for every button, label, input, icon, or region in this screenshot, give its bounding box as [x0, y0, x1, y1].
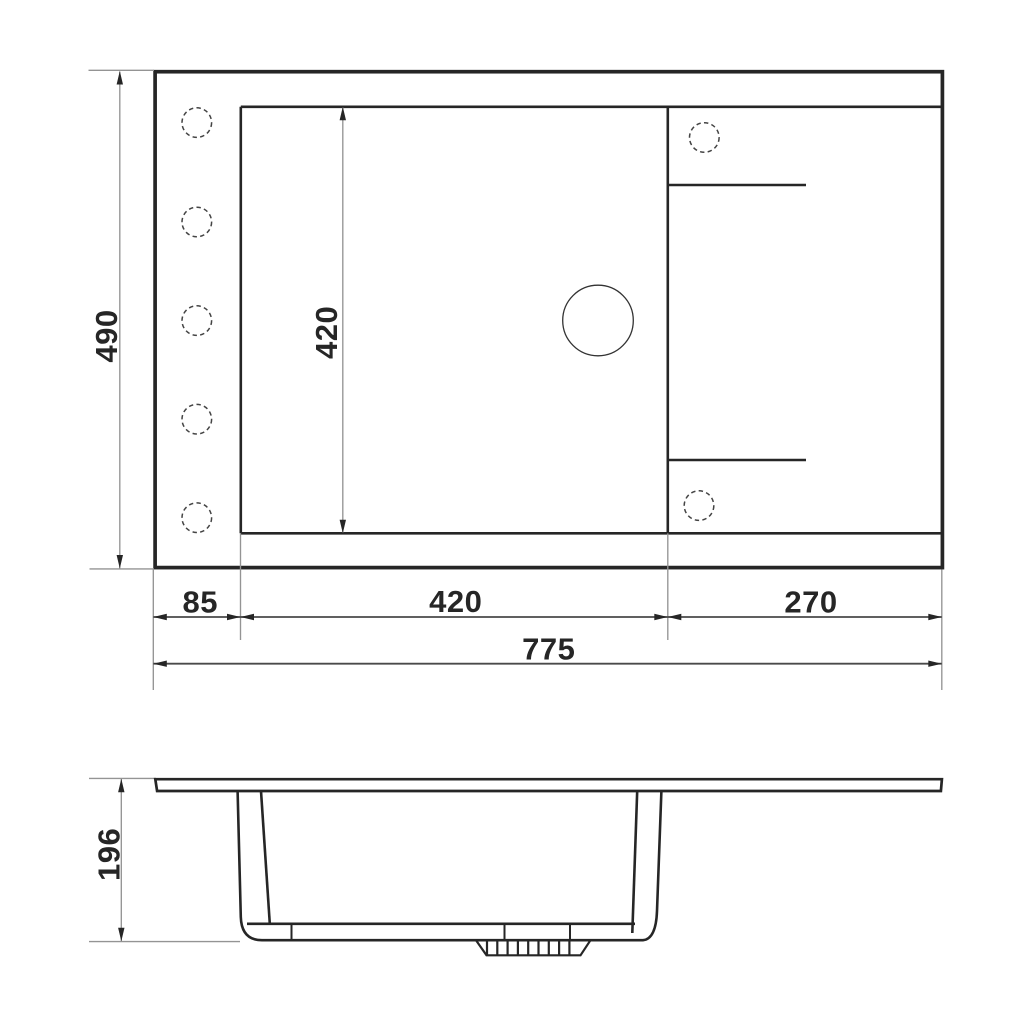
svg-text:420: 420: [429, 584, 482, 619]
svg-text:270: 270: [784, 585, 837, 620]
svg-text:490: 490: [89, 309, 124, 362]
svg-text:775: 775: [522, 632, 575, 667]
svg-text:85: 85: [183, 585, 218, 620]
svg-text:420: 420: [309, 306, 344, 359]
svg-text:196: 196: [91, 828, 126, 881]
